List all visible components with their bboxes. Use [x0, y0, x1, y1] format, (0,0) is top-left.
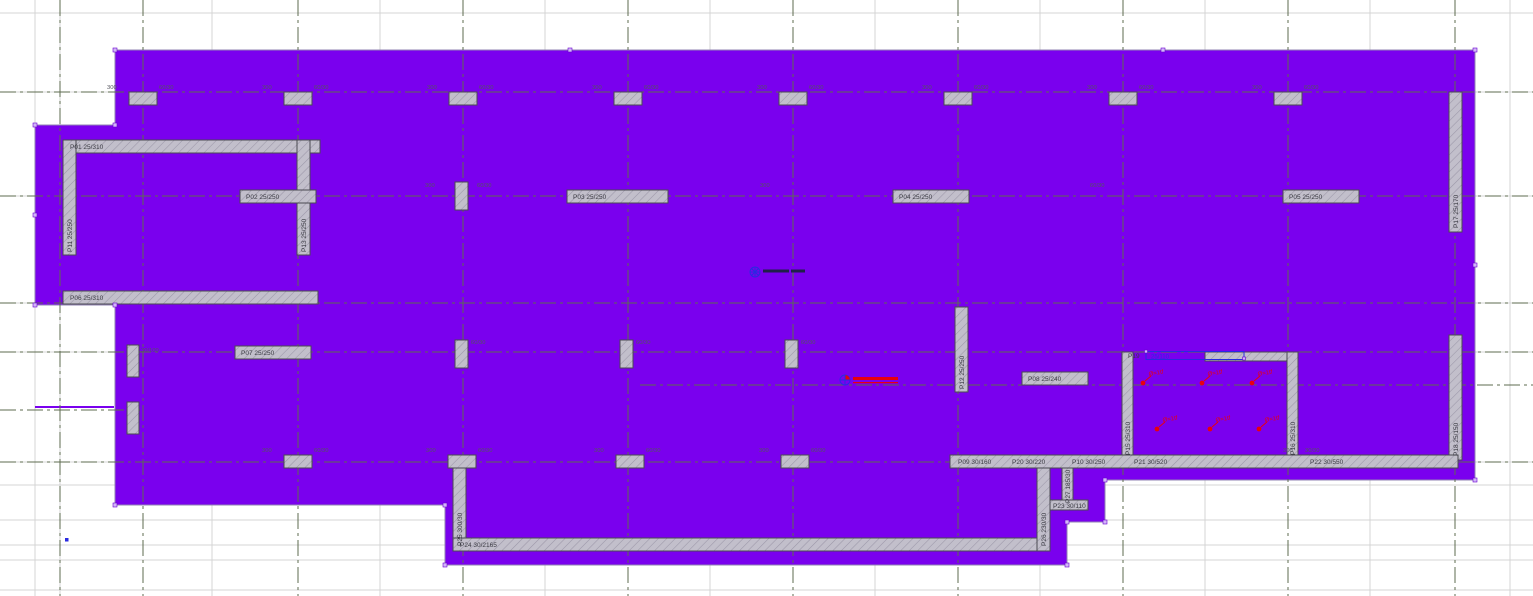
- column-left-a[interactable]: [127, 345, 139, 377]
- column-row3-b[interactable]: [620, 340, 633, 368]
- grip[interactable]: [1103, 520, 1107, 524]
- grip[interactable]: [443, 563, 447, 567]
- dim-column: 60/30: [479, 85, 494, 91]
- label-p19: P19: [1128, 353, 1140, 360]
- dim-span: 300: [107, 85, 117, 91]
- grip[interactable]: [1473, 48, 1477, 52]
- label-p25: P25 300/30: [457, 512, 464, 546]
- grip[interactable]: [1145, 350, 1148, 353]
- column-top-5[interactable]: [779, 92, 807, 105]
- dim-column: 60/30: [974, 85, 989, 91]
- dim-corner: 30/30: [1305, 448, 1320, 454]
- dim-column: 60/30: [1304, 85, 1319, 91]
- label-p02: P02 25/250: [246, 194, 280, 201]
- dim-span: 300: [922, 85, 932, 91]
- column-row2[interactable]: [455, 182, 468, 210]
- dim-span: 300: [594, 448, 604, 454]
- grip[interactable]: [1473, 263, 1477, 267]
- grip[interactable]: [1103, 478, 1107, 482]
- grip[interactable]: [1243, 357, 1246, 360]
- dim-column: 60/30: [636, 340, 651, 346]
- wall-p24[interactable]: [453, 538, 1050, 551]
- label-p08: P08 25/240: [1028, 376, 1062, 383]
- label-p18: P18 25/150: [1453, 422, 1460, 456]
- column-top-2[interactable]: [284, 92, 312, 105]
- column-row3-a[interactable]: [455, 340, 468, 368]
- dim-column: 60/30: [478, 448, 493, 454]
- grip[interactable]: [113, 123, 117, 127]
- label-p01: P01 25/310: [70, 144, 104, 151]
- label-p27: P27 185/30: [1065, 469, 1072, 503]
- label-p19-section: 25/110: [1151, 355, 1170, 361]
- column-top-8[interactable]: [1274, 92, 1302, 105]
- label-p21: P21 30/520: [1134, 459, 1168, 466]
- column-top-7[interactable]: [1109, 92, 1137, 105]
- column-top-4[interactable]: [614, 92, 642, 105]
- grip[interactable]: [1473, 478, 1477, 482]
- dim-span: 300: [262, 448, 272, 454]
- grip[interactable]: [113, 48, 117, 52]
- grip[interactable]: [33, 213, 37, 217]
- column-top-3[interactable]: [449, 92, 477, 105]
- dim-column: 60/30: [314, 448, 329, 454]
- dim-span: 300: [427, 85, 437, 91]
- dim-span: 300: [592, 85, 602, 91]
- dim-column: 60/30: [314, 85, 329, 91]
- column-top-6[interactable]: [944, 92, 972, 105]
- dim-column: 60/30: [644, 85, 659, 91]
- dim-column: 60/30: [159, 85, 174, 91]
- cad-viewport[interactable]: P01 25/310 P02 25/250 P03 25/250 P04 25/…: [0, 0, 1533, 596]
- dim-span: 300: [426, 448, 436, 454]
- label-p17: P17 25/170: [1453, 194, 1460, 228]
- column-bottom-4[interactable]: [781, 455, 809, 468]
- dim-column: 60/30: [646, 448, 661, 454]
- label-p26: P26 230/30: [1041, 512, 1048, 546]
- label-p11: P11 25/250: [67, 219, 74, 252]
- column-top-1[interactable]: [129, 92, 157, 105]
- grip[interactable]: [33, 123, 37, 127]
- dim-column: 60/30: [1139, 85, 1154, 91]
- dim-column: 60/30: [811, 448, 826, 454]
- grip-blue[interactable]: [65, 538, 69, 542]
- dim-span: 300: [1283, 448, 1293, 454]
- column-left-b[interactable]: [127, 402, 139, 434]
- label-p10: P10 30/250: [1072, 459, 1106, 466]
- grip[interactable]: [1161, 48, 1165, 52]
- label-p23: P23 30/110: [1053, 503, 1086, 510]
- dim-column: 60/30: [801, 340, 816, 346]
- label-p22: P22 30/550: [1310, 459, 1344, 466]
- floor-plan-canvas[interactable]: P01 25/310 P02 25/250 P03 25/250 P04 25/…: [0, 0, 1533, 596]
- dim-span: 300: [757, 85, 767, 91]
- dim-column: 60/30: [471, 340, 486, 346]
- label-p13: P13 25/250: [301, 218, 308, 252]
- label-p04: P04 25/250: [899, 194, 933, 201]
- column-bottom-1[interactable]: [284, 455, 312, 468]
- annotation-text-smudge: [791, 270, 805, 273]
- label-p03: P03 25/250: [573, 194, 607, 201]
- label-p05: P05 25/250: [1289, 194, 1323, 201]
- label-p07: P07 25/250: [241, 350, 275, 357]
- grip[interactable]: [113, 303, 117, 307]
- grip[interactable]: [443, 503, 447, 507]
- slab-polygon[interactable]: [35, 50, 1475, 565]
- annotation-underline: [853, 382, 898, 383]
- grip[interactable]: [33, 303, 37, 307]
- dim-column: 60/30: [1090, 183, 1105, 189]
- label-p12: P12 25/250: [959, 355, 966, 389]
- column-bottom-2[interactable]: [448, 455, 476, 468]
- label-p09: P09 30/160: [958, 459, 992, 466]
- label-p20: P20 30/220: [1012, 459, 1046, 466]
- dim-span: 300: [1087, 85, 1097, 91]
- column-row3-c[interactable]: [785, 340, 798, 368]
- dim-column-wide: 30/100: [141, 348, 159, 354]
- grip[interactable]: [568, 48, 572, 52]
- grip[interactable]: [1065, 563, 1069, 567]
- annotation-text-smudge: [763, 270, 789, 273]
- dim-span: 300: [760, 183, 770, 189]
- dim-span: 300: [262, 85, 272, 91]
- column-bottom-3[interactable]: [616, 455, 644, 468]
- dim-span: 300: [425, 183, 435, 189]
- slab-edge-fragment[interactable]: [35, 406, 114, 408]
- grip[interactable]: [113, 503, 117, 507]
- label-p06: P06 25/310: [70, 295, 104, 302]
- label-p24: P24 30/2165: [460, 542, 497, 549]
- dim-span: 300: [759, 448, 769, 454]
- label-p15: P15 25/310: [1125, 421, 1132, 455]
- annotation-text-smudge: [853, 377, 898, 380]
- dim-column: 60/30: [809, 85, 824, 91]
- grip[interactable]: [1065, 520, 1069, 524]
- dim-span: 300: [1252, 85, 1262, 91]
- dim-column: 60/30: [477, 183, 492, 189]
